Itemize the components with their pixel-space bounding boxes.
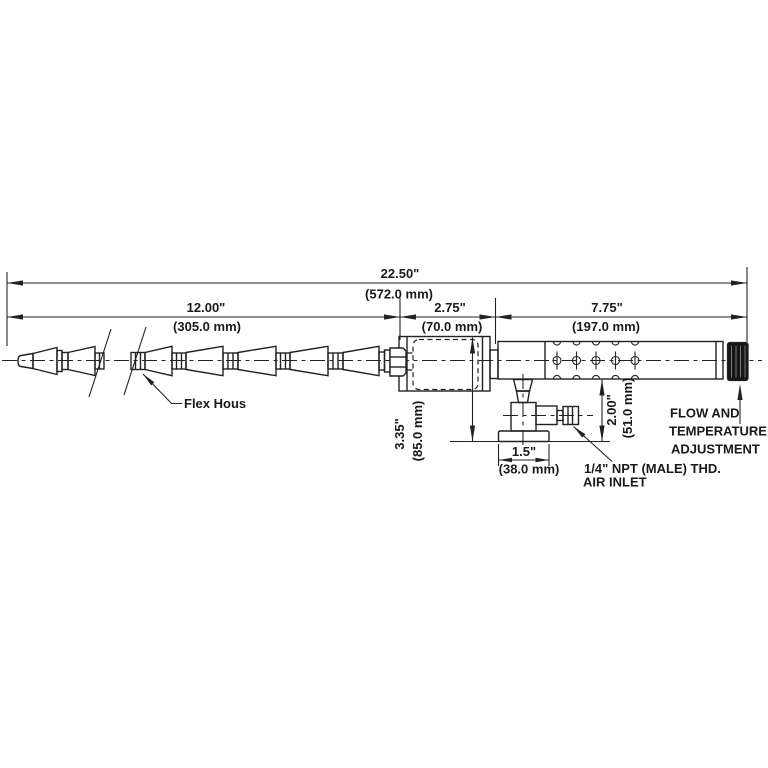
valve-body bbox=[399, 337, 498, 392]
dim-inlet-height-inch: 2.00" bbox=[604, 394, 619, 425]
adjustment-label-line1: FLOW AND bbox=[670, 406, 740, 421]
hose-nut bbox=[390, 348, 406, 376]
adjustment-knob bbox=[728, 343, 749, 381]
arrowhead bbox=[143, 374, 154, 386]
dim-base-mm: (38.0 mm) bbox=[499, 462, 560, 477]
arrowhead bbox=[599, 380, 604, 396]
arrowhead bbox=[574, 427, 586, 438]
break-mark bbox=[89, 329, 111, 397]
arrowhead bbox=[599, 426, 604, 442]
arrowhead bbox=[731, 280, 747, 285]
arrowhead bbox=[7, 314, 23, 319]
dim-base-inch: 1.5" bbox=[512, 444, 536, 459]
centerlines bbox=[2, 361, 762, 448]
dim-height-inch: 3.35" bbox=[392, 418, 407, 449]
dim-body-inch: 2.75" bbox=[434, 300, 465, 315]
dim-barrel-inch: 7.75" bbox=[591, 300, 622, 315]
dim-barrel-mm: (197.0 mm) bbox=[572, 319, 640, 334]
dim-overall-mm: (572.0 mm) bbox=[365, 287, 433, 302]
adjustment-label-line2: TEMPERATURE bbox=[669, 424, 767, 439]
arrowhead bbox=[470, 426, 475, 442]
labels: 22.50" (572.0 mm) 12.00" (305.0 mm) 2.75… bbox=[173, 266, 767, 490]
arrowhead bbox=[731, 314, 747, 319]
dim-inlet-height-mm: (51.0 mm) bbox=[620, 378, 635, 439]
flex-hose bbox=[18, 327, 406, 397]
dim-overall-inch: 22.50" bbox=[381, 266, 420, 281]
air-inlet-label-line2: AIR INLET bbox=[583, 475, 647, 490]
inlet-stem-assembly bbox=[499, 380, 579, 442]
arrowhead bbox=[737, 384, 742, 400]
arrowhead bbox=[7, 280, 23, 285]
mounting-base bbox=[499, 431, 550, 442]
dim-body-mm: (70.0 mm) bbox=[422, 319, 483, 334]
body-hidden-cavity bbox=[413, 340, 478, 390]
dim-hose-inch: 12.00" bbox=[187, 300, 226, 315]
dim-height-mm: (85.0 mm) bbox=[410, 401, 425, 462]
dim-hose-mm: (305.0 mm) bbox=[173, 319, 241, 334]
body-barrel-connector bbox=[490, 350, 498, 379]
technical-drawing-cold-air-gun: 22.50" (572.0 mm) 12.00" (305.0 mm) 2.75… bbox=[0, 0, 768, 768]
arrowhead bbox=[400, 314, 416, 319]
flex-hose-label: Flex Hous bbox=[184, 396, 246, 411]
arrowhead bbox=[384, 314, 400, 319]
adjustment-label-line3: ADJUSTMENT bbox=[671, 442, 760, 457]
arrowhead bbox=[496, 314, 512, 319]
